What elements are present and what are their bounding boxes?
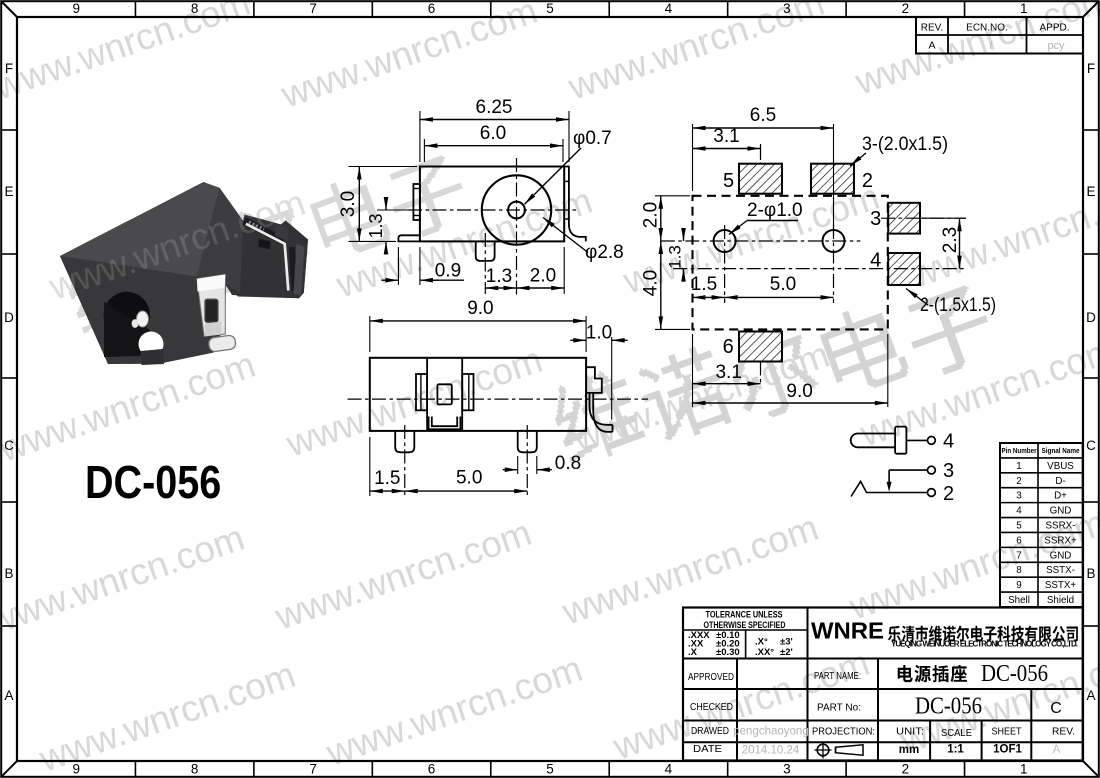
svg-text:4: 4 [1016, 506, 1022, 517]
svg-text:1.3: 1.3 [366, 213, 386, 238]
svg-text:5.0: 5.0 [456, 468, 482, 489]
svg-text:E: E [4, 184, 13, 199]
svg-text:3.1: 3.1 [713, 126, 739, 147]
svg-text:PROJECTION:: PROJECTION: [812, 726, 875, 738]
svg-text:F: F [5, 61, 13, 76]
svg-text:8: 8 [1016, 565, 1022, 576]
svg-text:1: 1 [1020, 762, 1028, 777]
svg-text:8: 8 [191, 762, 199, 777]
svg-text:D: D [4, 310, 14, 325]
svg-text:mm: mm [899, 744, 919, 756]
svg-text:3: 3 [783, 762, 791, 777]
svg-text:REV.: REV. [921, 23, 943, 34]
svg-text:3.0: 3.0 [338, 191, 359, 217]
svg-text:1.3: 1.3 [486, 266, 512, 287]
svg-text:DRAWED: DRAWED [691, 725, 729, 737]
svg-text:pengchaoyong: pengchaoyong [733, 726, 808, 738]
svg-text:UNIT:: UNIT: [896, 726, 924, 738]
svg-text:pcy: pcy [1047, 40, 1065, 52]
svg-text:SSRX+: SSRX+ [1044, 535, 1077, 546]
svg-text:Signal Name: Signal Name [1042, 446, 1080, 455]
svg-text:DC-056: DC-056 [981, 660, 1048, 687]
svg-text:1.3: 1.3 [666, 245, 685, 269]
svg-text:9: 9 [72, 762, 80, 777]
svg-text:DATE: DATE [693, 743, 722, 755]
svg-text:2: 2 [902, 762, 910, 777]
svg-text:D-: D- [1055, 476, 1065, 487]
svg-text:CHECKED: CHECKED [690, 701, 733, 713]
svg-text:9.0: 9.0 [786, 381, 812, 402]
svg-text:2014.10.24: 2014.10.24 [742, 745, 800, 757]
svg-text:ECN.NO.: ECN.NO. [966, 23, 1008, 34]
svg-text:B: B [1086, 566, 1095, 581]
svg-text:SSTX-: SSTX- [1046, 565, 1075, 576]
svg-text:A: A [1053, 744, 1061, 756]
svg-text:9: 9 [1016, 580, 1021, 591]
svg-text:E: E [1086, 184, 1095, 199]
svg-text:3: 3 [783, 1, 791, 16]
svg-text:1.0: 1.0 [586, 323, 612, 344]
svg-text:APPROVED: APPROVED [688, 671, 734, 683]
svg-text:D+: D+ [1054, 491, 1067, 502]
svg-text:7: 7 [309, 762, 317, 777]
svg-text:DC-056: DC-056 [915, 693, 982, 720]
svg-text:1: 1 [1016, 461, 1021, 472]
svg-text:2: 2 [943, 483, 954, 505]
svg-text:9.0: 9.0 [467, 298, 493, 319]
svg-text:5: 5 [723, 170, 734, 192]
svg-text:SSTX+: SSTX+ [1045, 580, 1077, 591]
svg-text:9: 9 [72, 1, 80, 16]
svg-text:3: 3 [870, 208, 881, 230]
svg-text:DC-056: DC-056 [85, 457, 221, 508]
svg-text:D: D [1086, 310, 1096, 325]
svg-text:6: 6 [428, 762, 436, 777]
svg-text:YUEQING WEINUOER ELECTRONIC TE: YUEQING WEINUOER ELECTRONIC TECHNOLOGY C… [891, 640, 1078, 649]
svg-text:A: A [1086, 688, 1095, 703]
svg-text:±2': ±2' [780, 647, 793, 658]
svg-text:6: 6 [723, 336, 734, 358]
svg-text:1OF1: 1OF1 [993, 744, 1022, 756]
svg-text:C: C [1086, 438, 1096, 453]
svg-text:4.0: 4.0 [641, 270, 662, 296]
svg-text:Shell: Shell [1008, 595, 1030, 606]
svg-text:φ2.8: φ2.8 [585, 242, 624, 263]
svg-text:5: 5 [546, 1, 554, 16]
svg-text:0.9: 0.9 [435, 261, 461, 282]
svg-text:2: 2 [902, 1, 910, 16]
svg-text:SHEET: SHEET [992, 726, 1022, 738]
svg-text:1.5: 1.5 [374, 468, 400, 489]
svg-text:3-(2.0x1.5): 3-(2.0x1.5) [862, 134, 948, 155]
svg-text:6: 6 [428, 1, 436, 16]
svg-text:1:1: 1:1 [947, 744, 964, 756]
svg-text:4: 4 [870, 249, 881, 271]
svg-text:Pin Number: Pin Number [1002, 446, 1037, 455]
svg-text:A: A [928, 40, 935, 52]
svg-text:C: C [1050, 700, 1062, 717]
svg-text:6: 6 [1016, 535, 1022, 546]
svg-text:WNRE: WNRE [811, 618, 884, 644]
svg-text:8: 8 [191, 1, 199, 16]
svg-text:A: A [4, 688, 13, 703]
svg-text:.XX°: .XX° [755, 647, 774, 658]
svg-text:REV.: REV. [1052, 726, 1075, 738]
svg-text:.X°: .X° [755, 637, 768, 648]
svg-text:6.0: 6.0 [480, 123, 506, 144]
svg-text:±3': ±3' [780, 637, 793, 648]
svg-text:3.1: 3.1 [715, 362, 741, 383]
svg-text:.X: .X [688, 647, 698, 658]
svg-text:APPD.: APPD. [1039, 23, 1069, 34]
svg-text:±0.30: ±0.30 [716, 647, 740, 658]
svg-text:5: 5 [546, 762, 554, 777]
svg-text:GND: GND [1050, 550, 1072, 561]
svg-text:2.0: 2.0 [641, 202, 662, 228]
svg-text:PART NAME:: PART NAME: [814, 670, 861, 682]
svg-text:7: 7 [1016, 550, 1021, 561]
svg-text:SCALE: SCALE [941, 727, 972, 739]
svg-text:0.8: 0.8 [555, 453, 581, 474]
svg-text:4: 4 [943, 431, 954, 453]
svg-text:B: B [4, 566, 13, 581]
svg-text:4: 4 [665, 762, 673, 777]
svg-text:PART No:: PART No: [817, 702, 861, 714]
svg-text:6.25: 6.25 [476, 97, 513, 118]
svg-text:3: 3 [1016, 491, 1022, 502]
svg-text:TOLERANCE UNLESS: TOLERANCE UNLESS [706, 610, 783, 620]
svg-text:OTHERWISE SPECIFIED: OTHERWISE SPECIFIED [704, 620, 786, 630]
svg-text:VBUS: VBUS [1047, 461, 1074, 472]
svg-text:GND: GND [1050, 506, 1072, 517]
svg-text:4: 4 [665, 1, 673, 16]
svg-text:SSRX-: SSRX- [1046, 521, 1076, 532]
svg-text:2-φ1.0: 2-φ1.0 [747, 200, 803, 221]
svg-text:1.5: 1.5 [691, 274, 717, 295]
svg-text:1: 1 [1020, 1, 1028, 16]
svg-text:7: 7 [309, 1, 317, 16]
svg-text:C: C [4, 438, 14, 453]
svg-text:5.0: 5.0 [770, 274, 796, 295]
svg-text:2-(1.5x1.5): 2-(1.5x1.5) [920, 295, 996, 316]
svg-text:φ0.7: φ0.7 [573, 128, 612, 149]
svg-text:2: 2 [1016, 476, 1021, 487]
svg-text:6.5: 6.5 [750, 105, 776, 126]
svg-text:2: 2 [862, 170, 873, 192]
svg-text:2.0: 2.0 [530, 266, 556, 287]
svg-text:Shield: Shield [1047, 595, 1074, 606]
svg-text:2.3: 2.3 [940, 227, 961, 253]
svg-text:F: F [1087, 61, 1095, 76]
svg-text:3: 3 [943, 460, 954, 482]
svg-text:5: 5 [1016, 521, 1022, 532]
